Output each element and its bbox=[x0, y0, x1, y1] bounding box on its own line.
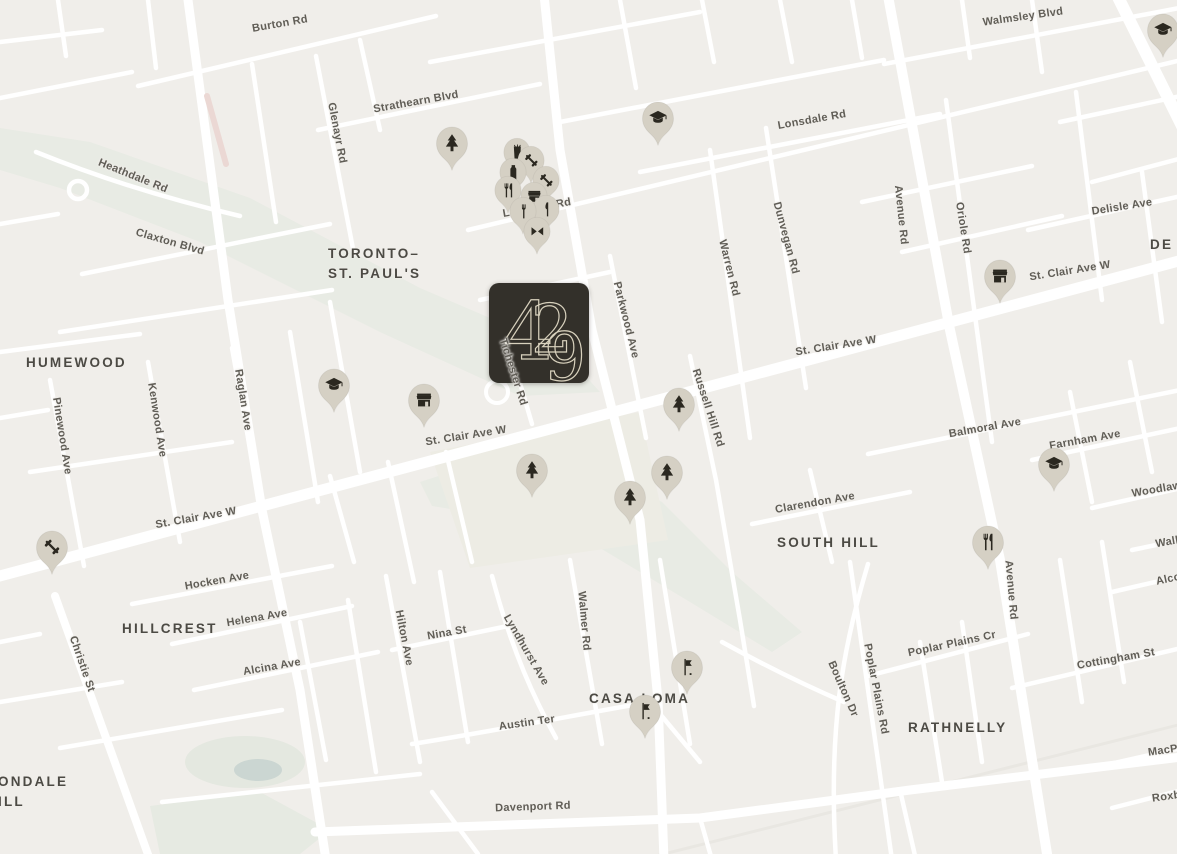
neighborhood-label: TORONTO–ST. PAUL'S bbox=[328, 244, 421, 284]
map-pin-flag[interactable] bbox=[625, 690, 665, 740]
flag-icon bbox=[676, 656, 698, 678]
neighborhood-label: HILLCREST bbox=[122, 619, 218, 639]
neighborhood-label: ONDALEILL bbox=[0, 772, 68, 812]
tree-icon bbox=[656, 461, 678, 483]
tree-icon bbox=[441, 132, 463, 154]
svg-text:9: 9 bbox=[544, 319, 586, 383]
logo-429-building-marker[interactable]: 429 bbox=[489, 283, 589, 383]
graduation-cap-icon bbox=[1152, 19, 1174, 41]
map-pin-tree[interactable] bbox=[610, 476, 650, 526]
map-pin-storefront[interactable] bbox=[404, 379, 444, 429]
dumbbell-icon bbox=[41, 536, 63, 558]
map-pin-dumbbell[interactable] bbox=[32, 526, 72, 576]
map-pin-restaurant[interactable] bbox=[968, 521, 1008, 571]
bowtie-icon bbox=[528, 222, 547, 241]
map-canvas[interactable]: 429 HUMEWOODTORONTO–ST. PAUL'SDESOUTH HI… bbox=[0, 0, 1177, 854]
neighborhood-label: HUMEWOOD bbox=[26, 353, 127, 373]
logo-429-numerals: 429 bbox=[489, 283, 589, 383]
map-pin-graduation-cap[interactable] bbox=[1034, 443, 1074, 493]
map-pin-graduation-cap[interactable] bbox=[1143, 9, 1177, 59]
storefront-icon bbox=[989, 265, 1011, 287]
map-pin-tree[interactable] bbox=[432, 122, 472, 172]
neighborhood-label: RATHNELLY bbox=[908, 718, 1007, 738]
storefront-icon bbox=[413, 389, 435, 411]
map-pin-storefront[interactable] bbox=[980, 255, 1020, 305]
flag-icon bbox=[634, 700, 656, 722]
tree-icon bbox=[619, 486, 641, 508]
graduation-cap-icon bbox=[1043, 453, 1065, 475]
neighborhood-label: DE bbox=[1150, 235, 1173, 255]
map-pin-tree[interactable] bbox=[512, 449, 552, 499]
graduation-cap-icon bbox=[323, 374, 345, 396]
map-pin-bowtie[interactable] bbox=[520, 213, 554, 256]
map-pin-graduation-cap[interactable] bbox=[638, 97, 678, 147]
tree-icon bbox=[521, 459, 543, 481]
map-pin-tree[interactable] bbox=[659, 383, 699, 433]
graduation-cap-icon bbox=[647, 107, 669, 129]
map-pin-flag[interactable] bbox=[667, 646, 707, 696]
restaurant-icon bbox=[977, 531, 999, 553]
map-pin-graduation-cap[interactable] bbox=[314, 364, 354, 414]
map-pin-tree[interactable] bbox=[647, 451, 687, 501]
neighborhood-label: SOUTH HILL bbox=[777, 533, 880, 553]
tree-icon bbox=[668, 393, 690, 415]
